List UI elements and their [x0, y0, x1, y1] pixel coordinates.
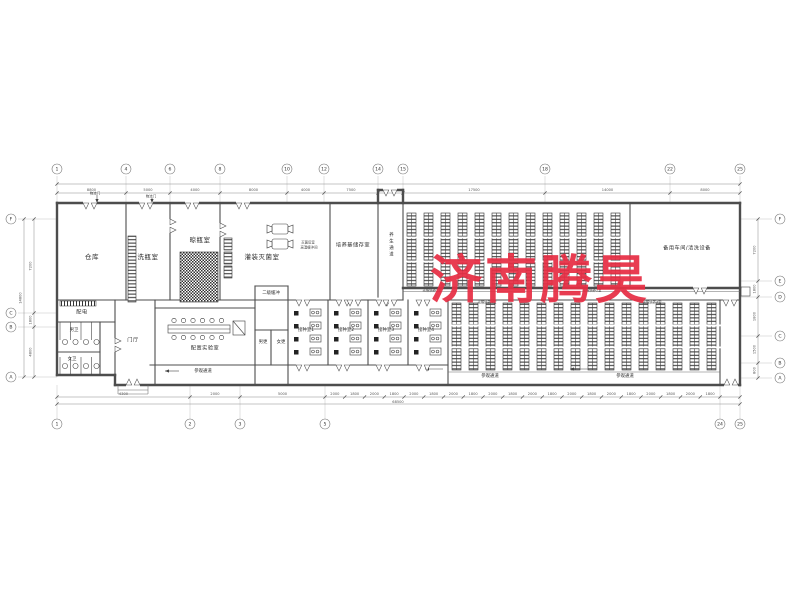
dimension-text: 1800 [508, 392, 518, 396]
dimension-text: 68500 [392, 400, 404, 404]
dimension-text: 2000 [646, 392, 656, 396]
dimension-text: 5000 [143, 188, 153, 192]
dimension-text: 14000 [602, 188, 614, 192]
dimension-text: 2000 [409, 392, 419, 396]
dimension-text: 17500 [468, 188, 480, 192]
dimension-text: 1800 [548, 392, 558, 396]
dimension-text: 2000 [567, 392, 577, 396]
dimension-text: 4800 [29, 347, 33, 357]
dimension-text: 2 [189, 422, 192, 428]
corridor-label-visitor-center: 参观通道 [481, 373, 499, 379]
room-label-mens-toilet: 男卫 [70, 327, 79, 333]
dimension-text: 4000 [301, 188, 311, 192]
dimension-text: 22 [667, 167, 673, 173]
room-label-bottle-washing: 洗瓶室 [138, 251, 159, 261]
dimension-text: 1800 [587, 392, 597, 396]
dimension-text: 1800 [350, 392, 360, 396]
dimension-text: 7500 [346, 188, 356, 192]
dimension-text: 14 [375, 167, 381, 173]
corridor-label-visitor-left: 参观通道 [194, 368, 212, 374]
dimension-text: 2000 [210, 392, 220, 396]
dimension-text: 6 [169, 167, 172, 173]
dimension-text: 1800 [390, 392, 400, 396]
room-label-inoculation-3: 接种室3 [378, 327, 394, 333]
dimension-text: 7200 [29, 261, 33, 271]
dimension-text: 1800 [753, 311, 757, 321]
dimension-text: C [9, 311, 12, 317]
dimension-text: 10 [284, 167, 290, 173]
dimension-text: 5000 [278, 392, 288, 396]
room-label-entrance-hall: 门厅 [127, 337, 138, 344]
room-label-mens-changing: 男更 [259, 339, 268, 345]
dimension-text: 24 [717, 422, 723, 428]
annotation-logistics-door-1: 物流门 [90, 191, 100, 196]
room-label-bottle-airing: 晾瓶室 [190, 234, 211, 244]
dimension-text: 25 [737, 422, 743, 428]
dimension-text: 1 [56, 167, 59, 173]
room-label-inoculation-2: 接种室2 [338, 327, 354, 333]
dimension-text: 14800 [19, 292, 23, 304]
corridor-label-visitor-right: 参观通道 [616, 373, 634, 379]
dimension-text: 3 [239, 422, 242, 428]
dimension-text: 2000 [607, 392, 617, 396]
dimension-text: 800 [753, 366, 757, 374]
dimension-text: 1800 [469, 392, 479, 396]
dimension-text: 1800 [753, 284, 757, 294]
dimension-text: 8 [219, 167, 222, 173]
dimension-text: 2000 [449, 392, 459, 396]
dimension-text: 25 [737, 167, 743, 173]
room-label-power: 配电 [76, 309, 87, 316]
room-label-inoculation-4: 接种室4 [418, 327, 434, 333]
annotation-logistics-door-2: 物流门 [146, 194, 156, 199]
watermark-text: 济南腾昊 [430, 255, 650, 307]
dimension-text: E [779, 279, 782, 285]
dimension-text: 12 [321, 167, 327, 173]
dimension-text: 2000 [528, 392, 538, 396]
dimension-text: 8000 [249, 188, 259, 192]
dimension-text: 18 [542, 167, 548, 173]
dimension-text: C [778, 334, 781, 340]
dimension-text: D [778, 295, 782, 301]
floor-plan-canvas: 8800500040008000400075001800175001400080… [0, 0, 800, 600]
room-label-medium-storage: 培养基储存室 [336, 242, 370, 249]
dimension-text: B [9, 325, 12, 331]
dimension-text: F [779, 217, 782, 223]
dimension-text: 1800 [706, 392, 716, 396]
dimension-text: 4 [125, 167, 128, 173]
dimension-text: 1 [56, 422, 59, 428]
room-label-womens-toilet: 女卫 [68, 356, 77, 362]
room-label-curing-corridor: 养生通道 [388, 232, 394, 258]
room-label-secondary-buffer: 二级缓冲 [262, 290, 280, 296]
room-label-prep-lab: 配置实验室 [191, 345, 219, 352]
dimension-text: F [10, 217, 13, 223]
plan-drawing: 8800500040008000400075001800175001400080… [0, 0, 800, 600]
dimension-text: 15 [400, 167, 406, 173]
dimension-text: 2000 [370, 392, 380, 396]
room-label-filling-sterilizing: 灌装灭菌室 [245, 251, 280, 261]
dimension-text: 2000 [330, 392, 340, 396]
annotation-high-temp-buffer: 高温缓冲间 [301, 245, 318, 250]
dimension-text: 1800 [627, 392, 637, 396]
dimension-text: 5 [324, 422, 327, 428]
dimension-text: 7200 [753, 245, 757, 255]
dimension-text: 1800 [29, 315, 33, 325]
dimension-text: 4000 [190, 188, 200, 192]
dimension-text: 1800 [666, 392, 676, 396]
dimension-text: 8000 [700, 188, 710, 192]
dimension-text: 1800 [429, 392, 439, 396]
room-label-warehouse: 仓库 [85, 251, 99, 261]
room-label-spare-workshop: 备用车间/清洗设备 [663, 245, 711, 252]
dimension-text: 1500 [753, 344, 757, 354]
dimension-text: 2000 [686, 392, 696, 396]
room-label-inoculation-1: 接种室1 [298, 327, 314, 333]
room-label-womens-changing: 女更 [277, 339, 286, 345]
dimension-text: B [778, 361, 781, 367]
dimension-text: 2000 [488, 392, 498, 396]
